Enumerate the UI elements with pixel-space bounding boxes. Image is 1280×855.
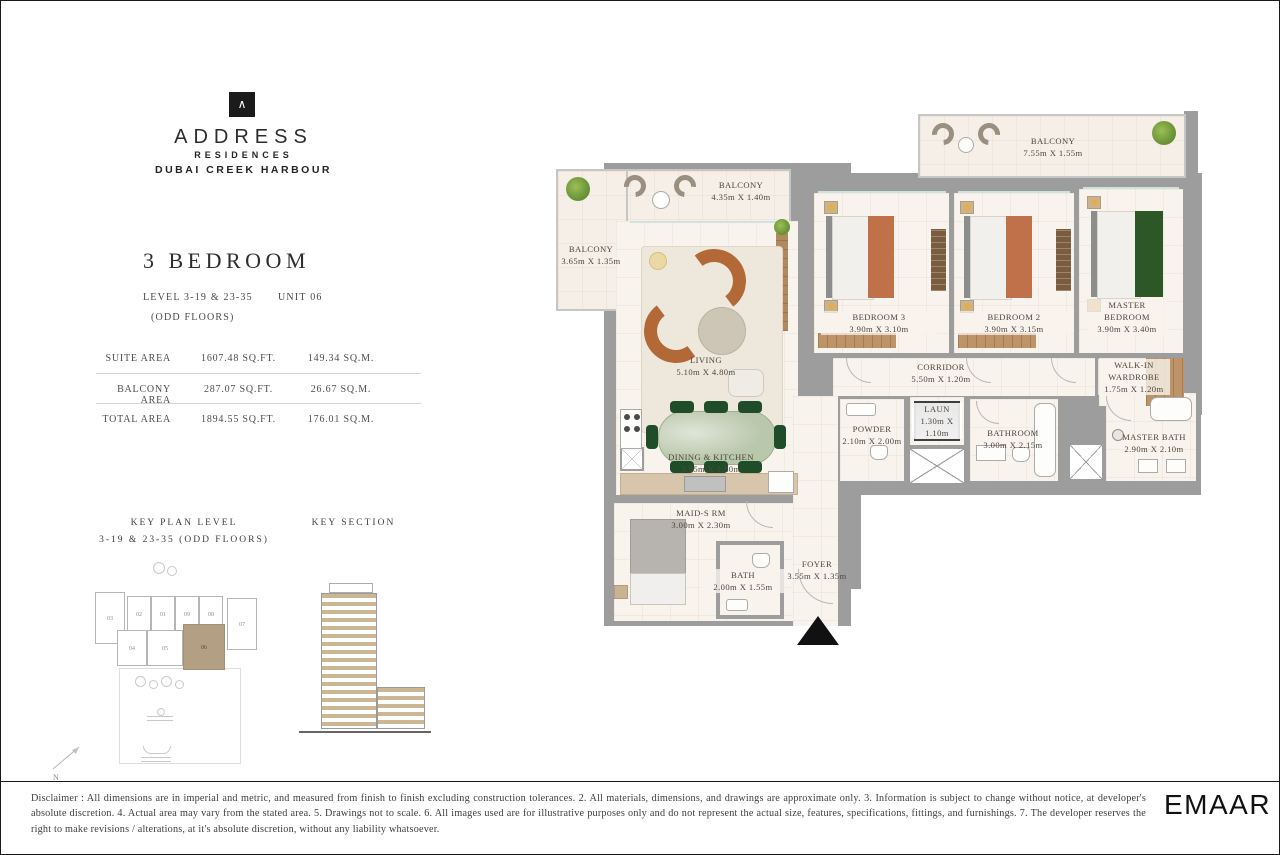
wardrobe-strip xyxy=(958,333,1036,348)
level-label: LEVEL 3-19 & 23-35 xyxy=(143,292,253,303)
shower-icon xyxy=(1112,429,1124,441)
area-row-label: SUITE AREA xyxy=(96,353,171,364)
burner-icon xyxy=(624,426,630,432)
wall-mass xyxy=(1184,111,1198,183)
sink xyxy=(976,445,1006,461)
bed-throw xyxy=(868,216,894,298)
footer-divider xyxy=(1,781,1280,782)
tree-icon xyxy=(167,566,177,576)
sea-waves-icon xyxy=(141,757,171,764)
brand-subtitle-residences: RESIDENCES xyxy=(141,150,346,160)
keyplan-unit: 05 xyxy=(147,630,183,666)
balcony-table xyxy=(958,137,974,153)
area-row-imperial: 1607.48 SQ.FT. xyxy=(186,353,291,364)
sink xyxy=(1166,459,1186,473)
key-plan-title: KEY PLAN LEVEL xyxy=(99,518,269,528)
brand-name: ADDRESS xyxy=(141,126,346,149)
burner-icon xyxy=(634,426,640,432)
lamp-icon xyxy=(1091,199,1098,206)
plant-icon xyxy=(774,219,790,235)
bathtub xyxy=(1150,397,1192,421)
maids-bed xyxy=(630,519,686,577)
lamp-icon xyxy=(964,204,971,211)
washer xyxy=(914,401,960,441)
north-compass-icon: N xyxy=(43,737,89,783)
sink xyxy=(726,599,748,611)
dining-chair xyxy=(670,401,694,413)
armchair xyxy=(728,369,764,397)
dining-chair xyxy=(670,461,694,473)
dining-chair xyxy=(704,461,728,473)
floorplan-brochure-page: ∧ ADDRESS RESIDENCES DUBAI CREEK HARBOUR… xyxy=(0,0,1280,855)
tower-cap xyxy=(329,583,373,593)
bathtub xyxy=(1034,403,1056,477)
dining-chair xyxy=(646,425,658,449)
closet xyxy=(1056,229,1071,291)
wardrobe-strip xyxy=(818,333,896,348)
keyplan-unit: 07 xyxy=(227,598,257,650)
area-row-imperial: 1894.55 SQ.FT. xyxy=(186,414,291,425)
area-row-label: TOTAL AREA xyxy=(96,414,171,425)
pool-waves-icon xyxy=(147,716,173,724)
kitchen-shaft xyxy=(620,447,644,471)
page-title: 3 BEDROOM xyxy=(143,248,310,274)
key-section-title: KEY SECTION xyxy=(286,518,421,528)
burner-icon xyxy=(624,414,630,420)
emaar-logo: EMAAR xyxy=(1164,789,1271,821)
table-divider xyxy=(96,403,421,404)
tower-body xyxy=(321,593,377,729)
kitchen-sink xyxy=(684,476,726,492)
lamp-icon xyxy=(828,303,835,310)
window-glass xyxy=(958,191,1070,193)
lamp-icon xyxy=(964,303,971,310)
tree-icon xyxy=(149,680,158,689)
keyplan-unit-highlighted: 06 xyxy=(183,624,225,670)
maids-bed-pillow xyxy=(630,573,686,605)
lamp-icon xyxy=(828,204,835,211)
keyplan-unit: 01 xyxy=(151,596,175,632)
area-row-metric: 176.01 SQ.M. xyxy=(296,414,386,425)
burner-icon xyxy=(634,414,640,420)
area-row-metric: 26.67 SQ.M. xyxy=(296,384,386,395)
bed-throw xyxy=(1135,211,1163,297)
keyplan-unit: 04 xyxy=(117,630,147,666)
dining-chair xyxy=(774,425,786,449)
dining-chair xyxy=(738,461,762,473)
floor-plan: BALCONY 4.35m X 1.40m BALCONY 3.65m X 1.… xyxy=(546,111,1236,656)
plant-icon xyxy=(566,177,590,201)
key-plan-diagram: 03 02 01 09 08 07 04 05 06 xyxy=(81,556,256,771)
sink xyxy=(1138,459,1158,473)
closet xyxy=(931,229,946,291)
wall-mass xyxy=(849,489,861,589)
toilet xyxy=(1012,447,1030,462)
swimmer-icon xyxy=(157,708,165,716)
tree-icon xyxy=(135,676,146,687)
sink xyxy=(846,403,876,416)
keyplan-unit: 02 xyxy=(127,596,151,632)
window-glass xyxy=(818,191,946,193)
toilet xyxy=(752,553,770,568)
entrance-arrow-icon xyxy=(797,616,839,645)
side-table xyxy=(614,585,628,599)
service-shaft xyxy=(908,447,966,485)
sliding-door-glass xyxy=(630,221,788,223)
area-row-metric: 149.34 SQ.M. xyxy=(296,353,386,364)
tree-icon xyxy=(161,676,172,687)
table-divider xyxy=(96,373,421,374)
ground-line xyxy=(299,731,431,733)
dining-table xyxy=(658,411,776,465)
key-section-diagram xyxy=(299,581,434,746)
lamp-icon xyxy=(1091,302,1098,309)
brand-logo-icon: ∧ xyxy=(229,92,255,117)
floor-lamp xyxy=(649,252,667,270)
window-glass xyxy=(1083,187,1179,189)
unit-number-label: UNIT 06 xyxy=(278,292,323,303)
coffee-table xyxy=(698,307,746,355)
fridge xyxy=(768,471,794,493)
balcony-table xyxy=(652,191,670,209)
toilet xyxy=(870,445,888,460)
area-row-imperial: 287.07 SQ.FT. xyxy=(186,384,291,395)
dining-chair xyxy=(704,401,728,413)
tower-podium xyxy=(377,687,425,729)
plant-icon xyxy=(1152,121,1176,145)
brand-subtitle-location: DUBAI CREEK HARBOUR xyxy=(111,164,376,176)
disclaimer-text: Disclaimer : All dimensions are in imper… xyxy=(31,791,1146,837)
tree-icon xyxy=(175,680,184,689)
dining-chair xyxy=(738,401,762,413)
floors-note: (ODD FLOORS) xyxy=(151,312,235,323)
tree-icon xyxy=(153,562,165,574)
bed-throw xyxy=(1006,216,1032,298)
key-plan-subtitle: 3-19 & 23-35 (ODD FLOORS) xyxy=(79,535,289,545)
service-shaft xyxy=(1068,443,1104,481)
